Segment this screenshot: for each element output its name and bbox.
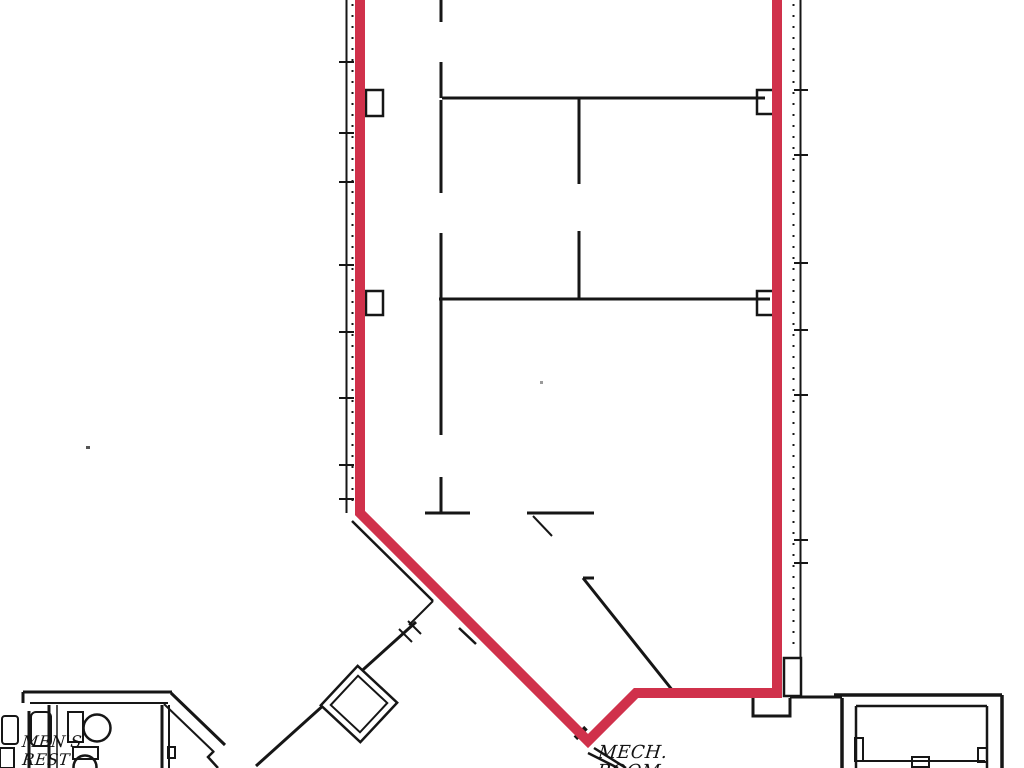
stray-marks <box>86 381 543 449</box>
sink-basin-icon <box>84 715 111 742</box>
mens-rest-label-line2: REST <box>21 750 72 768</box>
right-room <box>834 695 1002 768</box>
mech-room-label-line1: MECH. <box>596 742 668 763</box>
mech-room-walls <box>753 697 842 716</box>
suite-boundary-highlight <box>360 0 777 741</box>
corridor-walls <box>164 521 626 768</box>
toilet-bowl-icon <box>74 756 97 768</box>
urinal-icon <box>2 716 18 744</box>
left-window-wall <box>339 0 354 513</box>
room-labels: MEN'S REST MECH. ROOM <box>20 732 668 768</box>
mech-room-label-line2: ROOM <box>595 761 662 768</box>
mens-rest-label-line1: MEN'S <box>20 732 83 751</box>
right-window-wall <box>784 0 808 696</box>
column-covers <box>366 90 774 315</box>
stall-icon <box>0 748 14 768</box>
interior-walls <box>425 0 770 691</box>
floor-plan: MEN'S REST MECH. ROOM <box>0 0 1024 768</box>
corridor-kiosk <box>321 666 397 742</box>
